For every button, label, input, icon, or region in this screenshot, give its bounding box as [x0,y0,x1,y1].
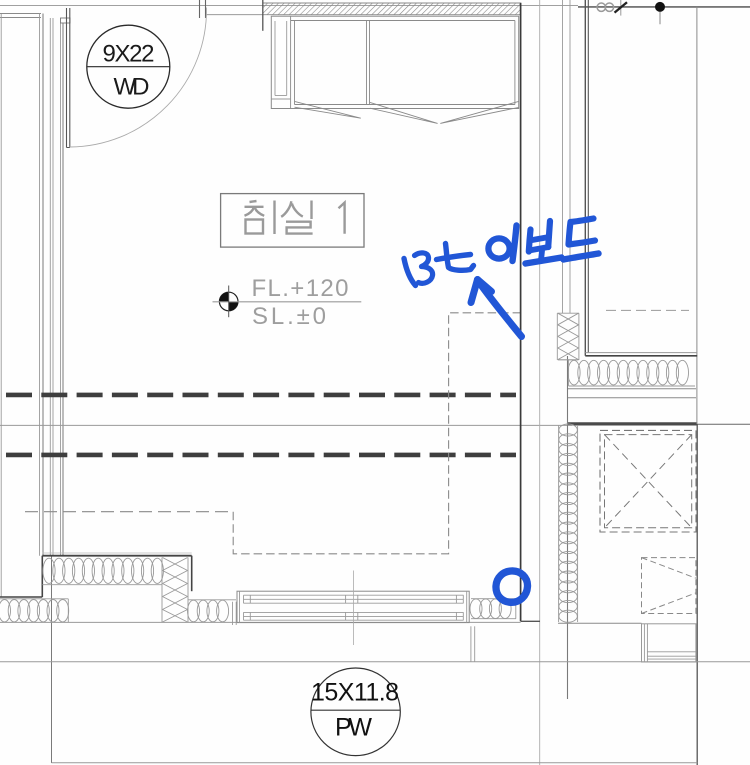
svg-text:15X11.8: 15X11.8 [311,679,399,707]
svg-text:WD: WD [114,74,150,101]
svg-text:SL.±0: SL.±0 [252,303,326,330]
svg-text:9X22: 9X22 [103,41,155,68]
svg-text:PW: PW [335,713,372,741]
